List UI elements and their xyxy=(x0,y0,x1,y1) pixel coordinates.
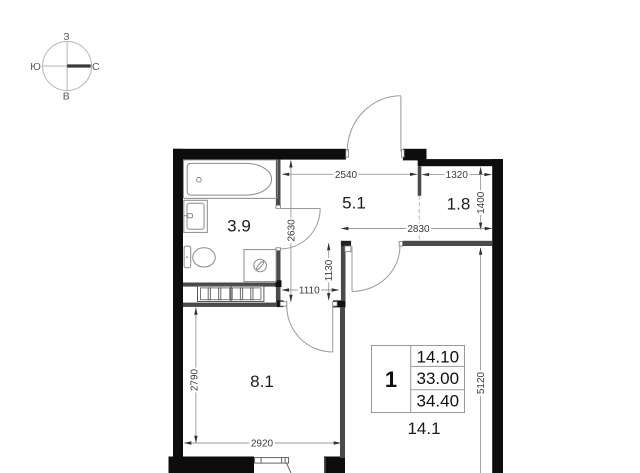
svg-text:1320: 1320 xyxy=(446,170,469,181)
svg-text:34.40: 34.40 xyxy=(417,392,460,411)
svg-text:33.00: 33.00 xyxy=(417,369,460,388)
svg-text:5120: 5120 xyxy=(476,371,487,394)
svg-text:З: З xyxy=(63,31,69,43)
svg-text:2540: 2540 xyxy=(335,170,358,181)
svg-text:С: С xyxy=(92,61,100,73)
svg-text:2790: 2790 xyxy=(189,368,200,391)
svg-text:14.10: 14.10 xyxy=(417,347,460,366)
svg-text:В: В xyxy=(63,91,70,103)
svg-text:1400: 1400 xyxy=(476,191,487,214)
svg-text:1130: 1130 xyxy=(324,259,335,281)
svg-text:1110: 1110 xyxy=(299,286,320,297)
svg-text:1: 1 xyxy=(385,367,397,392)
svg-text:3.9: 3.9 xyxy=(227,217,251,236)
svg-text:2630: 2630 xyxy=(286,219,297,242)
svg-text:5.1: 5.1 xyxy=(342,194,366,213)
svg-text:14.1: 14.1 xyxy=(407,419,440,438)
svg-text:1.8: 1.8 xyxy=(447,195,471,214)
svg-text:8.1: 8.1 xyxy=(250,372,274,391)
svg-text:2830: 2830 xyxy=(407,224,430,235)
svg-text:Ю: Ю xyxy=(30,61,41,73)
svg-text:2920: 2920 xyxy=(251,439,274,450)
